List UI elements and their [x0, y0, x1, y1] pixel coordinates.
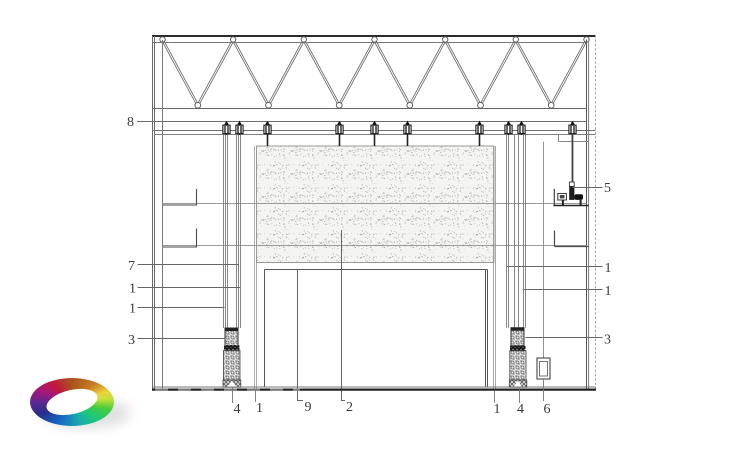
svg-text:1: 1 [129, 302, 136, 317]
svg-text:1: 1 [494, 402, 501, 417]
svg-text:7: 7 [128, 259, 135, 274]
svg-text:4: 4 [234, 402, 241, 417]
svg-text:2: 2 [346, 400, 353, 415]
svg-text:5: 5 [604, 181, 611, 196]
svg-text:8: 8 [127, 115, 134, 130]
svg-text:1: 1 [256, 401, 263, 416]
svg-text:9: 9 [305, 400, 312, 415]
svg-text:4: 4 [517, 402, 524, 417]
svg-text:6: 6 [544, 402, 551, 417]
svg-text:3: 3 [128, 333, 135, 348]
svg-text:1: 1 [605, 261, 612, 276]
svg-text:1: 1 [605, 284, 612, 299]
svg-text:3: 3 [604, 333, 611, 348]
svg-text:1: 1 [129, 282, 136, 297]
